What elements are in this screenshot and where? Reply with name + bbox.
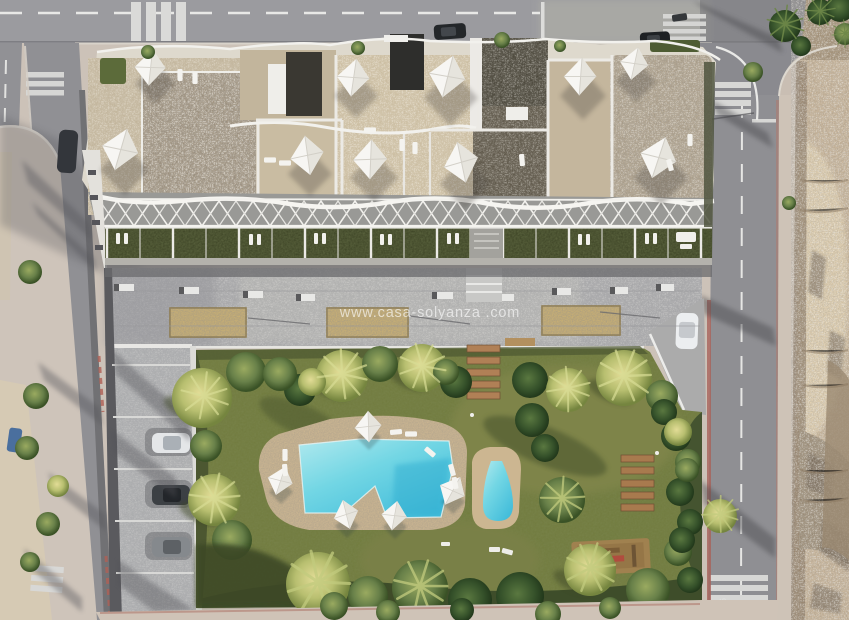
svg-text:www.casa-solyanza .com: www.casa-solyanza .com [339,305,520,321]
